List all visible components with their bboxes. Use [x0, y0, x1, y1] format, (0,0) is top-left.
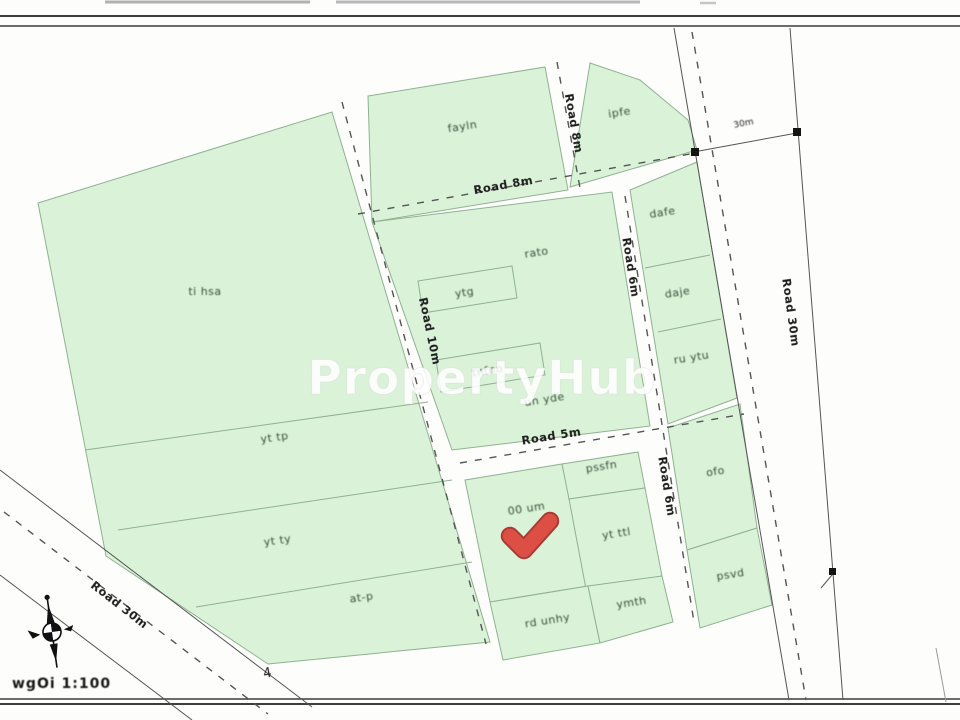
plot-map-page: ti hsa yt tp yt ty at-p fayln ipfe rato … [0, 0, 960, 720]
parcel-wedge: ipfe [570, 63, 697, 187]
edge-line [936, 648, 946, 702]
dimension-point [829, 568, 836, 575]
dimension-line [699, 133, 797, 151]
watermark: PropertyHub [307, 351, 656, 406]
road-label: Road 30m [779, 277, 802, 347]
annotation-4: 4 [262, 666, 273, 682]
road-label: Road 30m [88, 578, 151, 631]
dimension-point [793, 128, 801, 136]
dimension-label: 30m [733, 117, 755, 131]
parcel-label: ti hsa [188, 285, 221, 298]
parcel-top-middle: fayln [368, 67, 568, 222]
parcel-lower-block: 00 um pssfn yt ttl rd unhy ymth [465, 452, 673, 660]
land-plot-map: ti hsa yt tp yt ty at-p fayln ipfe rato … [0, 0, 960, 720]
scan-artifacts-top [105, 2, 716, 3]
dimension-point [691, 148, 699, 156]
parcel-east-column: ofo psvd [668, 404, 772, 628]
compass-rose-icon [23, 592, 79, 671]
dimension-tick [821, 575, 832, 588]
scale-label: wgOi 1:100 [12, 676, 111, 692]
